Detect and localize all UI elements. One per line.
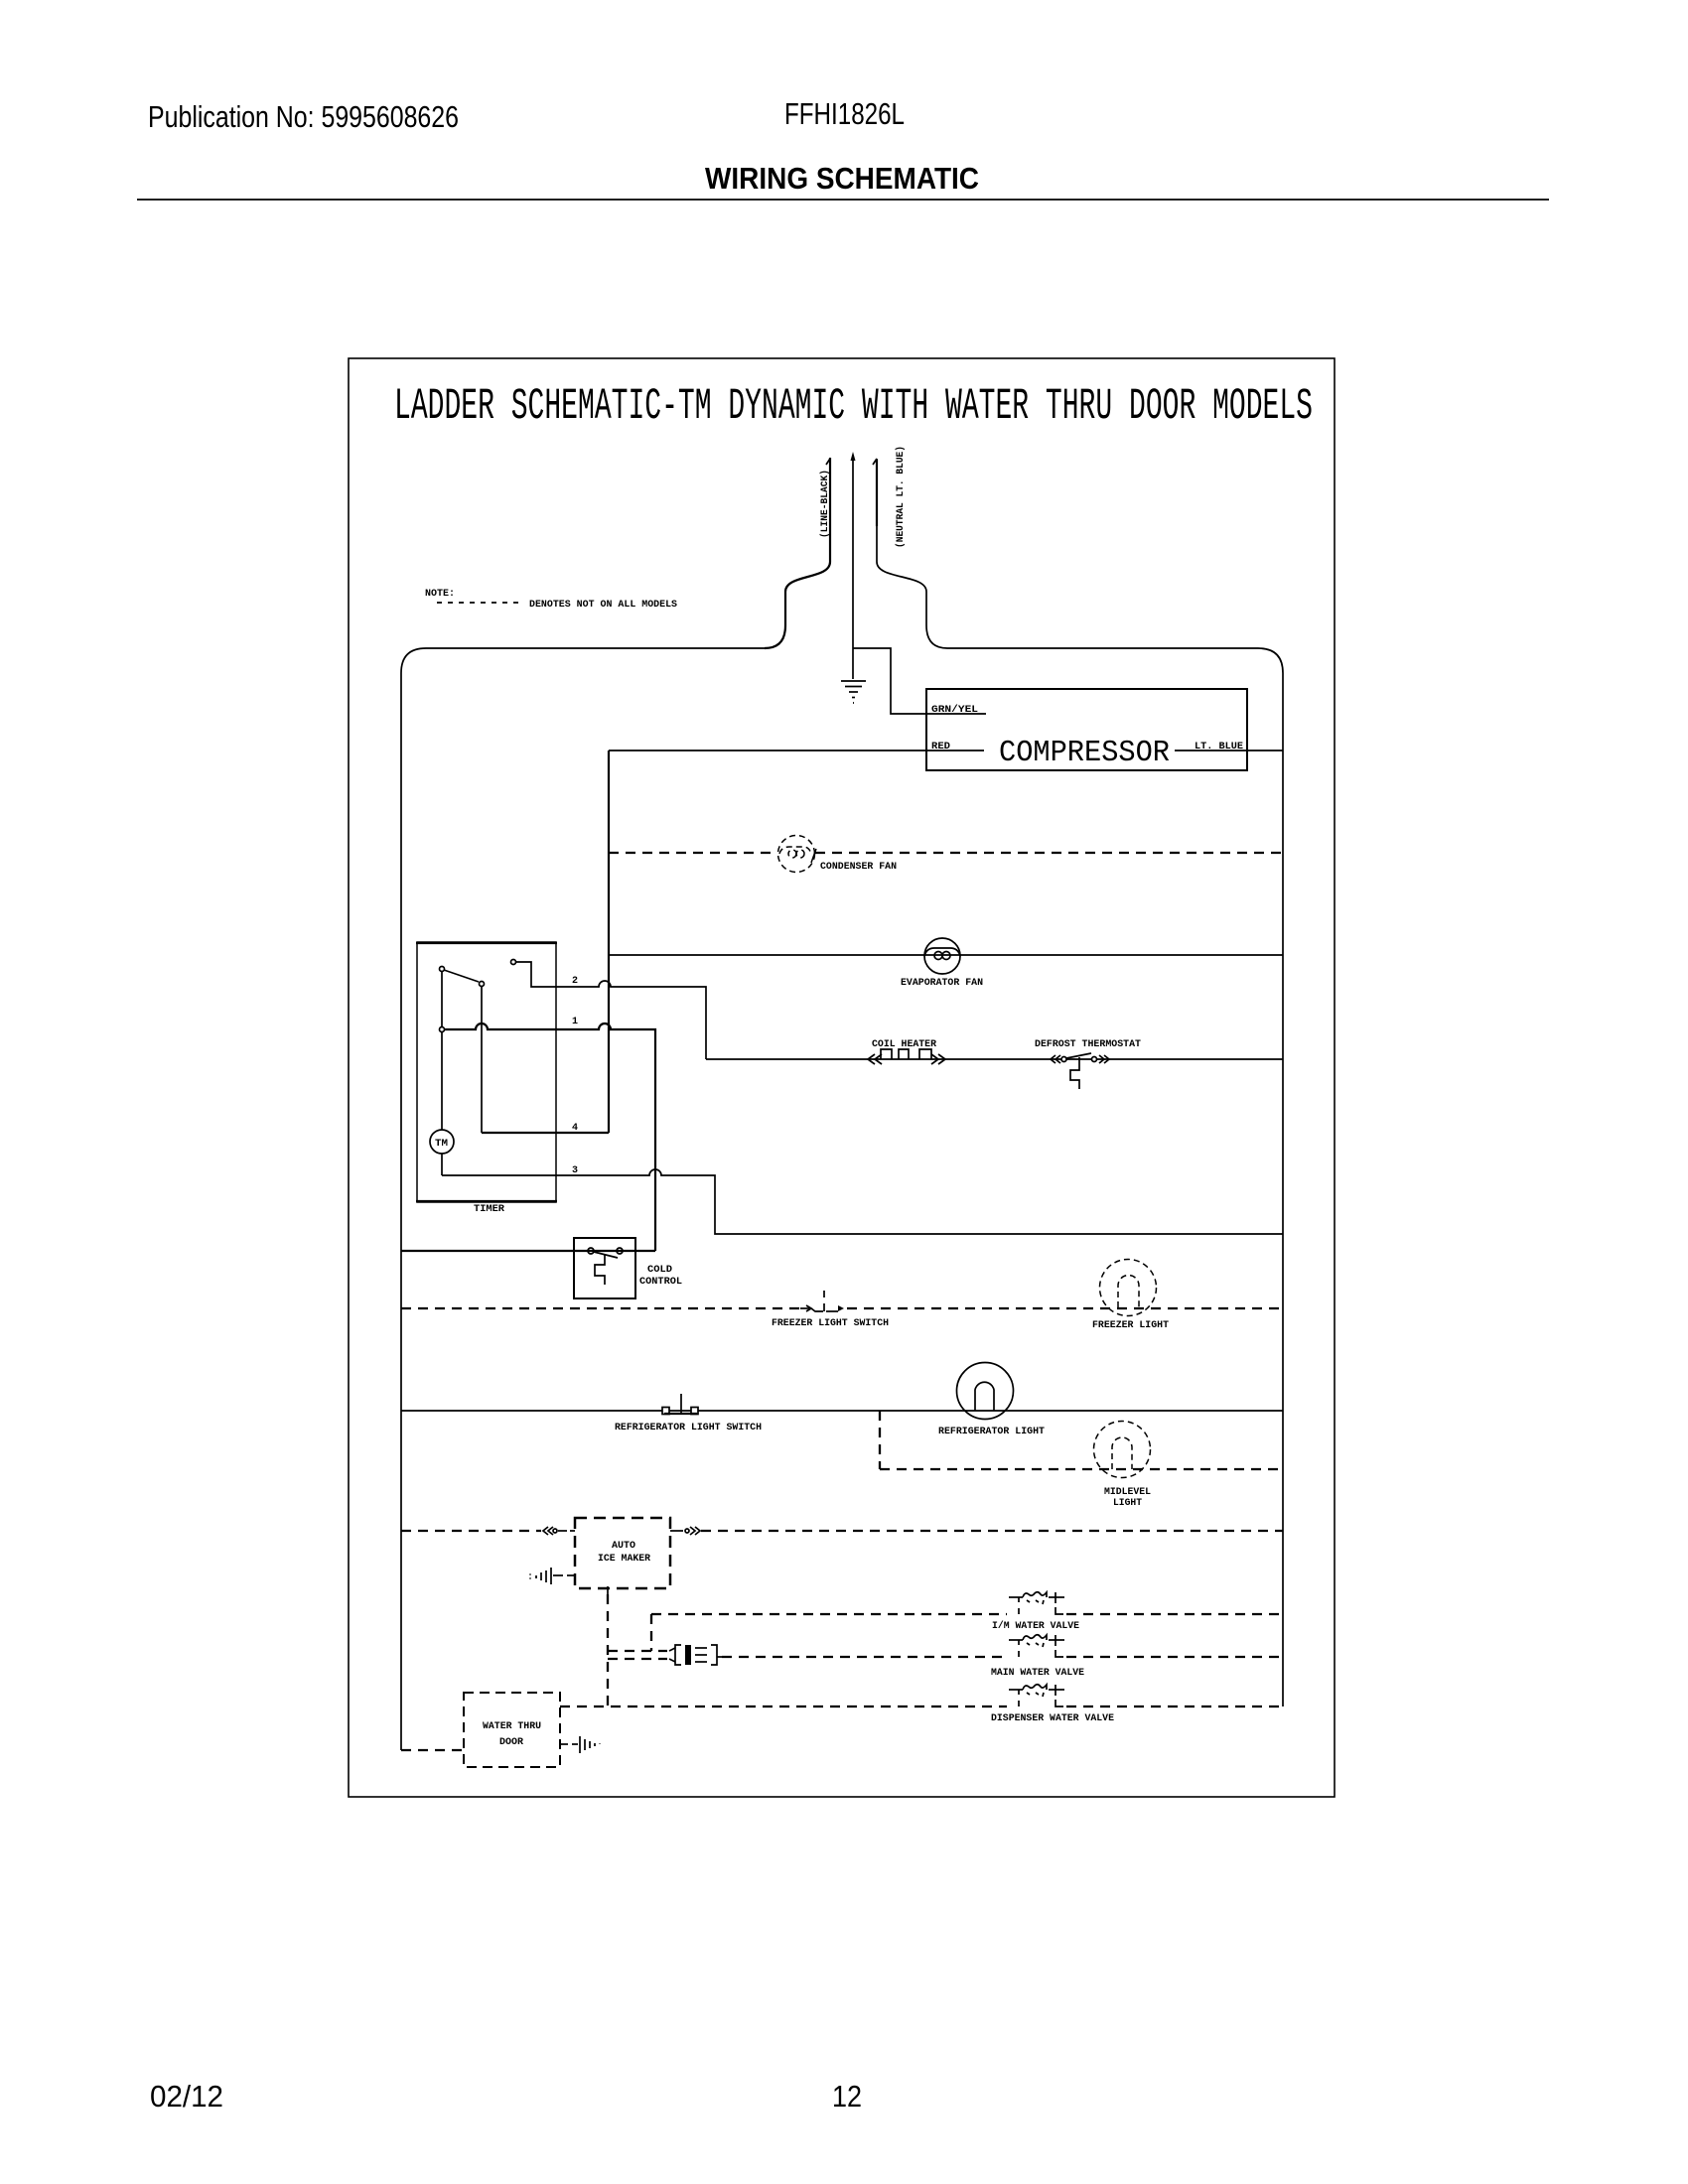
svg-text:AUTO: AUTO bbox=[612, 1541, 635, 1552]
svg-text:TM: TM bbox=[435, 1139, 448, 1150]
svg-text:FREEZER LIGHT SWITCH: FREEZER LIGHT SWITCH bbox=[772, 1318, 889, 1329]
svg-text:COIL HEATER: COIL HEATER bbox=[872, 1039, 936, 1050]
svg-text:COLD: COLD bbox=[647, 1265, 672, 1276]
svg-text:02/12: 02/12 bbox=[150, 2079, 223, 2114]
svg-text:FREEZER LIGHT: FREEZER LIGHT bbox=[1092, 1320, 1169, 1331]
svg-text:WATER THRU: WATER THRU bbox=[483, 1721, 541, 1732]
svg-text:LIGHT: LIGHT bbox=[1113, 1498, 1142, 1509]
svg-text:CONTROL: CONTROL bbox=[639, 1277, 682, 1288]
svg-text:CONDENSER FAN: CONDENSER FAN bbox=[820, 862, 897, 873]
svg-text:LADDER SCHEMATIC-TM DYNAMIC WI: LADDER SCHEMATIC-TM DYNAMIC WITH WATER T… bbox=[394, 382, 1313, 432]
svg-text:Publication No: 5995608626: Publication No: 5995608626 bbox=[148, 99, 459, 134]
svg-text:MAIN WATER VALVE: MAIN WATER VALVE bbox=[991, 1668, 1084, 1679]
svg-text:REFRIGERATOR LIGHT: REFRIGERATOR LIGHT bbox=[938, 1427, 1045, 1437]
svg-text:MIDLEVEL: MIDLEVEL bbox=[1104, 1487, 1151, 1498]
svg-text:NOTE:: NOTE: bbox=[425, 589, 455, 600]
svg-text:GRN/YEL: GRN/YEL bbox=[931, 704, 978, 716]
svg-text:I/M WATER VALVE: I/M WATER VALVE bbox=[992, 1620, 1079, 1632]
svg-text:EVAPORATOR FAN: EVAPORATOR FAN bbox=[901, 978, 983, 989]
svg-text:FFHI1826L: FFHI1826L bbox=[784, 96, 905, 131]
svg-text:12: 12 bbox=[832, 2079, 862, 2114]
svg-text:TIMER: TIMER bbox=[474, 1204, 504, 1215]
svg-text:ICE MAKER: ICE MAKER bbox=[598, 1554, 650, 1565]
svg-text:DISPENSER WATER VALVE: DISPENSER WATER VALVE bbox=[991, 1713, 1114, 1724]
svg-text:(NEUTRAL LT. BLUE): (NEUTRAL LT. BLUE) bbox=[895, 446, 907, 548]
svg-text:3: 3 bbox=[572, 1165, 578, 1176]
svg-text:DOOR: DOOR bbox=[499, 1737, 523, 1748]
svg-text:DEFROST THERMOSTAT: DEFROST THERMOSTAT bbox=[1035, 1039, 1141, 1050]
svg-text:DENOTES NOT ON ALL MODELS: DENOTES NOT ON ALL MODELS bbox=[529, 600, 677, 611]
svg-text:4: 4 bbox=[572, 1123, 578, 1134]
svg-text:1: 1 bbox=[572, 1017, 578, 1027]
svg-text:RED: RED bbox=[931, 742, 950, 752]
svg-text:COMPRESSOR: COMPRESSOR bbox=[999, 735, 1170, 770]
svg-text:2: 2 bbox=[572, 976, 578, 987]
svg-text:WIRING SCHEMATIC: WIRING SCHEMATIC bbox=[705, 161, 979, 196]
svg-text:REFRIGERATOR LIGHT SWITCH: REFRIGERATOR LIGHT SWITCH bbox=[615, 1423, 762, 1433]
